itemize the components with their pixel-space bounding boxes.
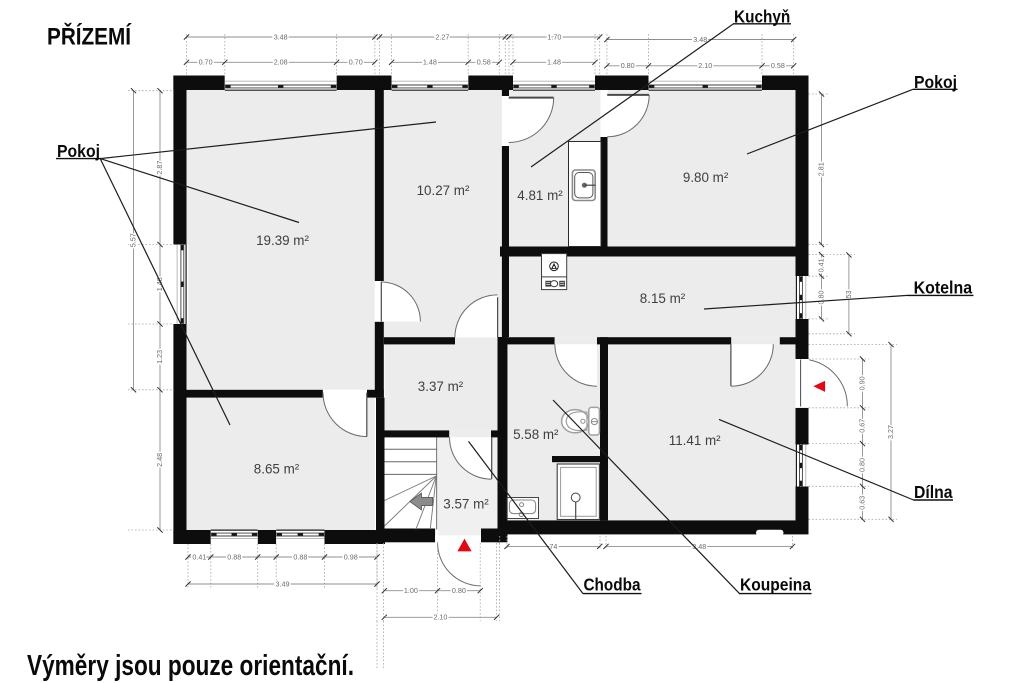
svg-text:0.70: 0.70 [349,58,363,67]
svg-text:0.80: 0.80 [817,291,826,305]
svg-text:0.88: 0.88 [227,552,241,561]
svg-text:2.81: 2.81 [817,162,826,176]
svg-text:Dílna: Dílna [914,482,953,502]
svg-text:PŘÍZEMÍ: PŘÍZEMÍ [47,22,132,50]
svg-text:3.57 m²: 3.57 m² [443,497,489,512]
svg-text:1.23: 1.23 [155,350,164,364]
svg-text:2.27: 2.27 [435,32,449,41]
svg-text:Výměry jsou pouze orientační.: Výměry jsou pouze orientační. [27,650,354,682]
svg-text:1.48: 1.48 [423,58,437,67]
svg-text:5.57: 5.57 [129,233,138,247]
svg-text:5.58 m²: 5.58 m² [513,427,559,442]
svg-text:3.49: 3.49 [276,579,290,588]
svg-text:1.70: 1.70 [547,32,561,41]
svg-text:74: 74 [549,542,557,551]
svg-text:0.80: 0.80 [452,586,466,595]
svg-text:2.10: 2.10 [698,61,712,70]
svg-text:Pokoj: Pokoj [914,72,957,92]
svg-text:3.27: 3.27 [886,425,895,439]
svg-text:Kotelna: Kotelna [914,278,973,298]
svg-text:2.87: 2.87 [155,161,164,175]
svg-text:19.39 m²: 19.39 m² [256,233,309,248]
svg-text:3.48: 3.48 [274,32,288,41]
svg-text:9.80 m²: 9.80 m² [683,170,729,185]
svg-text:Pokoj: Pokoj [57,141,100,161]
svg-text:53: 53 [844,290,853,298]
svg-text:2.08: 2.08 [274,58,288,67]
svg-text:3.37 m²: 3.37 m² [418,379,464,394]
svg-text:0.80: 0.80 [621,61,635,70]
svg-text:2.48: 2.48 [155,453,164,467]
svg-text:Chodba: Chodba [584,575,641,595]
svg-text:11.41 m²: 11.41 m² [669,433,721,448]
svg-text:0.58: 0.58 [477,58,491,67]
svg-text:1.48: 1.48 [547,58,561,67]
svg-text:0.63: 0.63 [858,496,867,510]
svg-text:0.41: 0.41 [192,552,206,561]
svg-text:0.67: 0.67 [858,419,867,433]
svg-text:0.88: 0.88 [293,552,307,561]
svg-text:0.58: 0.58 [771,61,785,70]
svg-text:4.81 m²: 4.81 m² [517,188,563,203]
svg-text:10.27 m²: 10.27 m² [417,183,470,198]
svg-text:8.65 m²: 8.65 m² [254,461,300,476]
svg-text:2.10: 2.10 [433,613,447,622]
svg-text:0.90: 0.90 [858,376,867,390]
svg-text:0.70: 0.70 [199,58,213,67]
svg-text:0.41: 0.41 [817,258,826,272]
svg-text:0.80: 0.80 [858,458,867,472]
svg-text:Kuchyň: Kuchyň [734,6,790,26]
svg-text:Koupeina: Koupeina [740,575,811,595]
svg-text:1.00: 1.00 [404,586,418,595]
svg-text:0.98: 0.98 [344,552,358,561]
svg-text:8.15 m²: 8.15 m² [640,291,686,306]
svg-text:3.48: 3.48 [693,35,707,44]
